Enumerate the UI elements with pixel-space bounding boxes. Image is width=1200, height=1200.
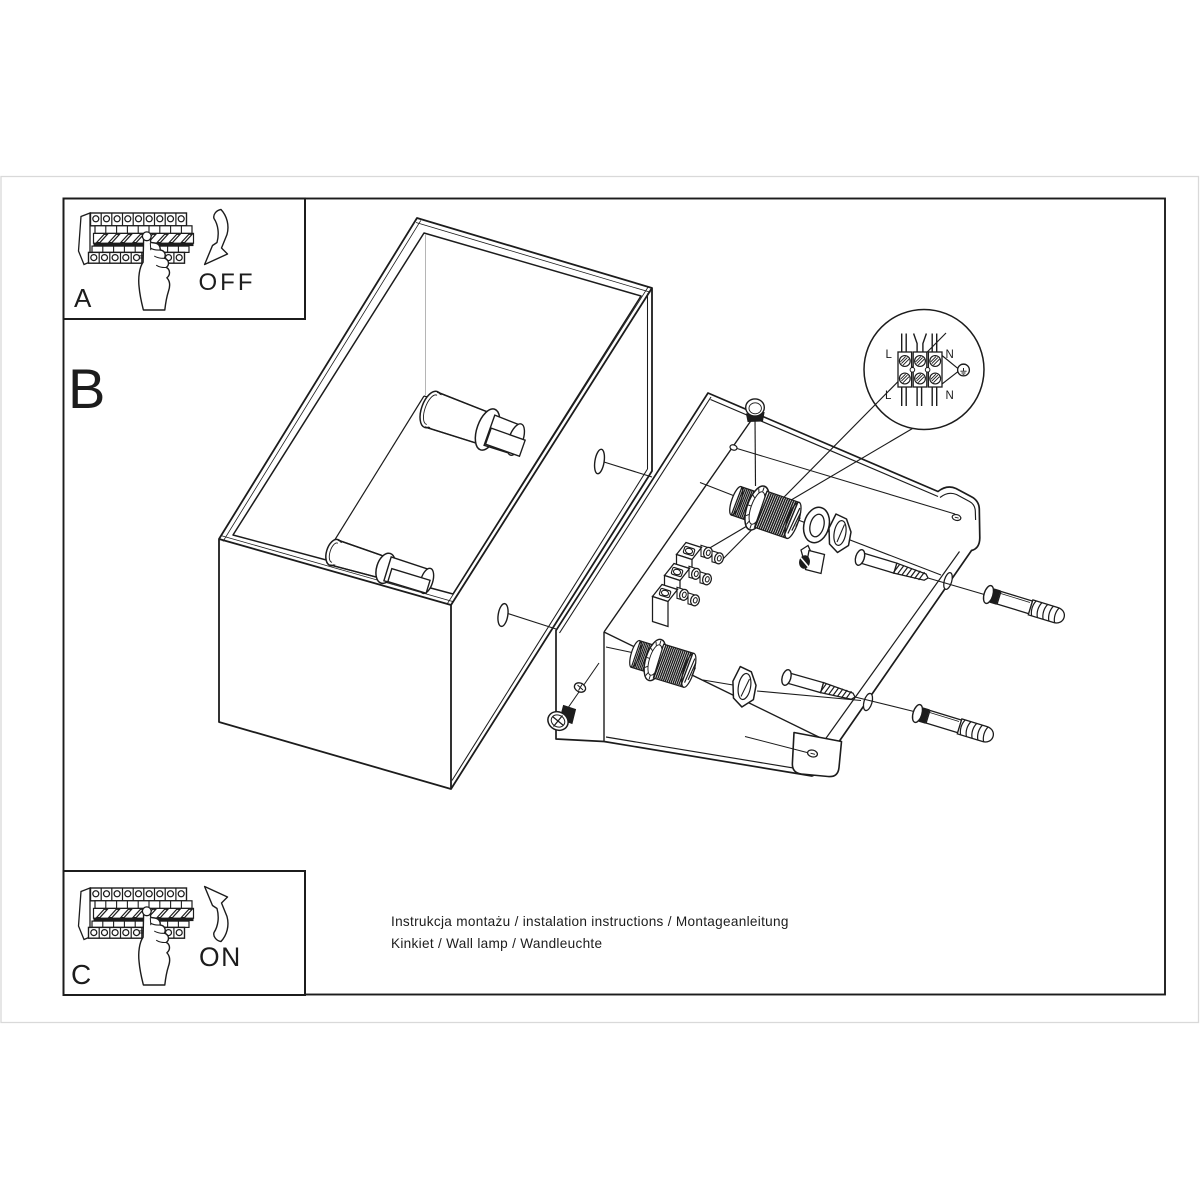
svg-text:C: C bbox=[71, 959, 91, 990]
svg-text:OFF: OFF bbox=[199, 269, 256, 296]
svg-text:B: B bbox=[68, 357, 105, 420]
svg-text:Kinkiet / Wall lamp / Wandleuc: Kinkiet / Wall lamp / Wandleuchte bbox=[391, 936, 602, 951]
svg-text:N: N bbox=[946, 390, 954, 402]
svg-text:L: L bbox=[886, 349, 893, 361]
svg-text:ON: ON bbox=[199, 942, 242, 972]
svg-text:L: L bbox=[885, 390, 892, 402]
svg-text:A: A bbox=[74, 283, 92, 313]
svg-text:Instrukcja montażu / instalati: Instrukcja montażu / instalation instruc… bbox=[391, 914, 789, 929]
